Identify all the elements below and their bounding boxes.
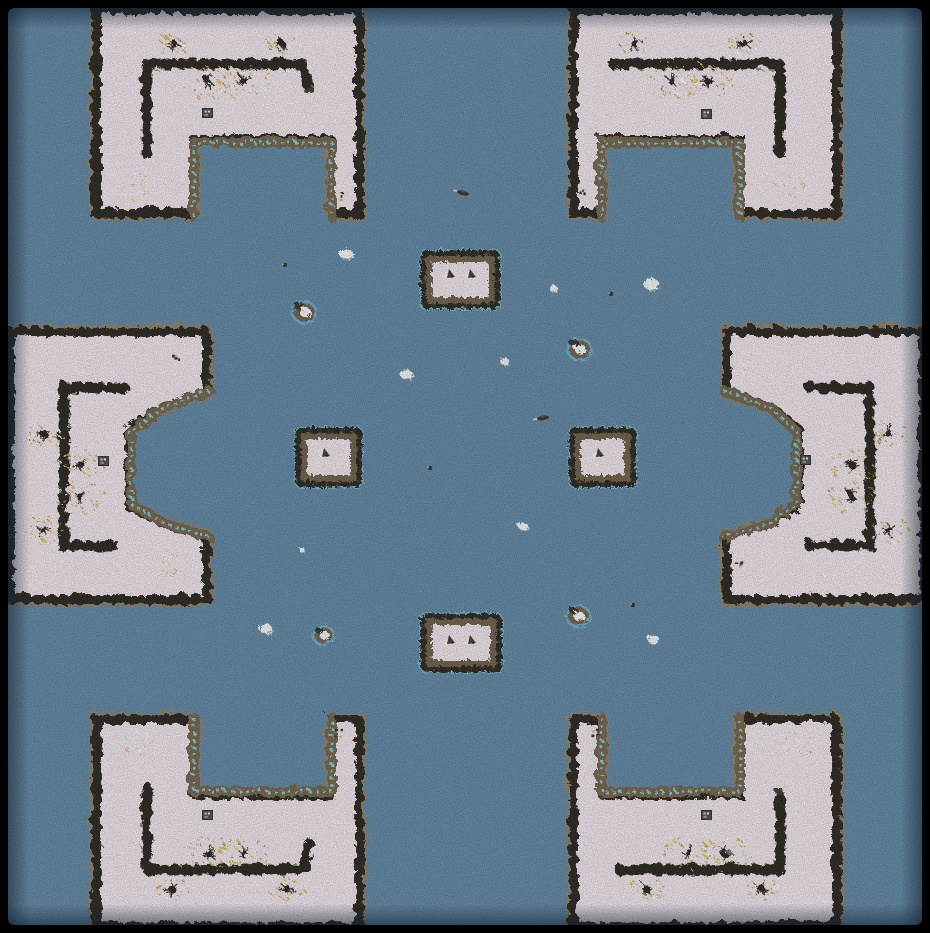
vignette-top — [7, 7, 923, 29]
map-preview[interactable] — [0, 0, 930, 933]
grain-light-overlay — [0, 0, 930, 933]
vignette-right — [901, 7, 923, 926]
vignette-left — [7, 7, 29, 926]
vignette-bottom — [7, 904, 923, 926]
game-map-canvas[interactable] — [0, 0, 930, 933]
